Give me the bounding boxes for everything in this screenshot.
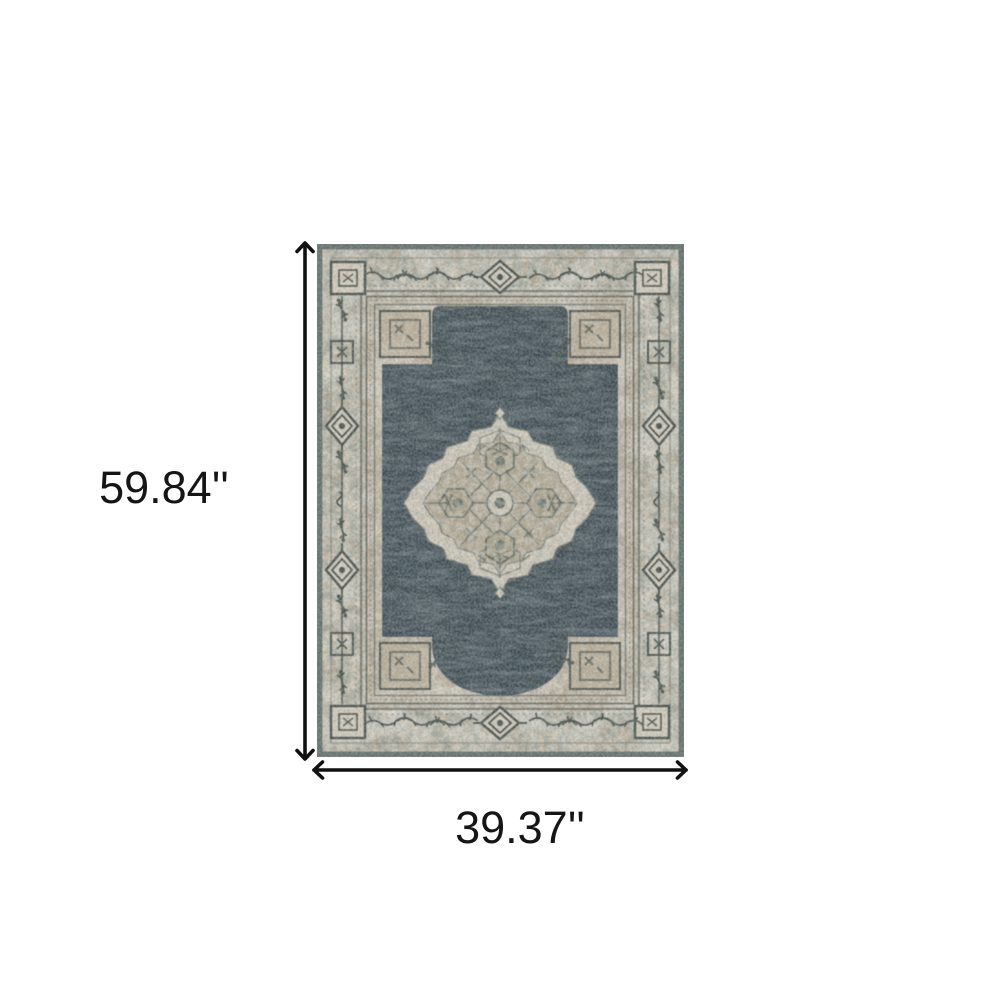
- svg-text:59.84'': 59.84'': [99, 462, 229, 513]
- svg-text:39.37'': 39.37'': [455, 802, 585, 853]
